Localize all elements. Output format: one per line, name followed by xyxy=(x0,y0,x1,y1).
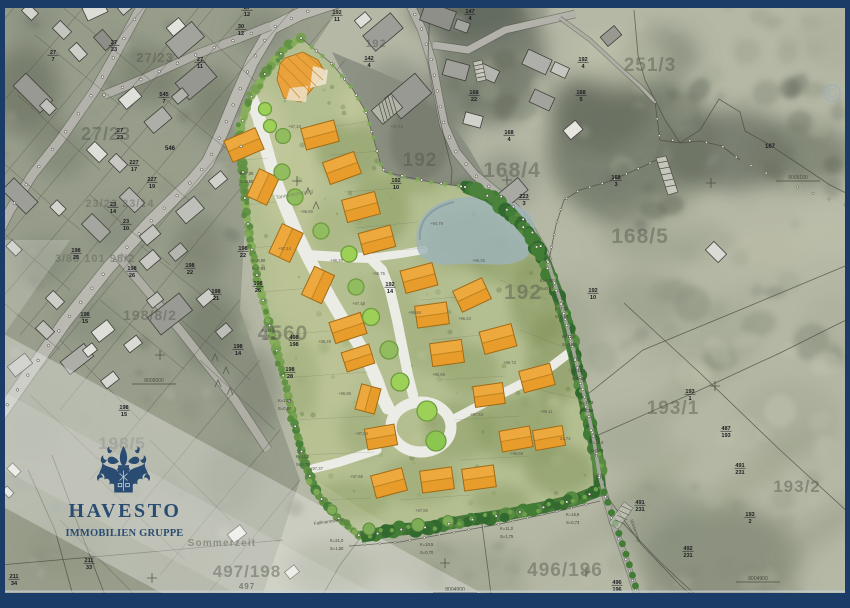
svg-text:IMMOBILIEN GRUPPE: IMMOBILIEN GRUPPE xyxy=(65,528,183,539)
svg-text:HAVESTO: HAVESTO xyxy=(68,500,181,522)
